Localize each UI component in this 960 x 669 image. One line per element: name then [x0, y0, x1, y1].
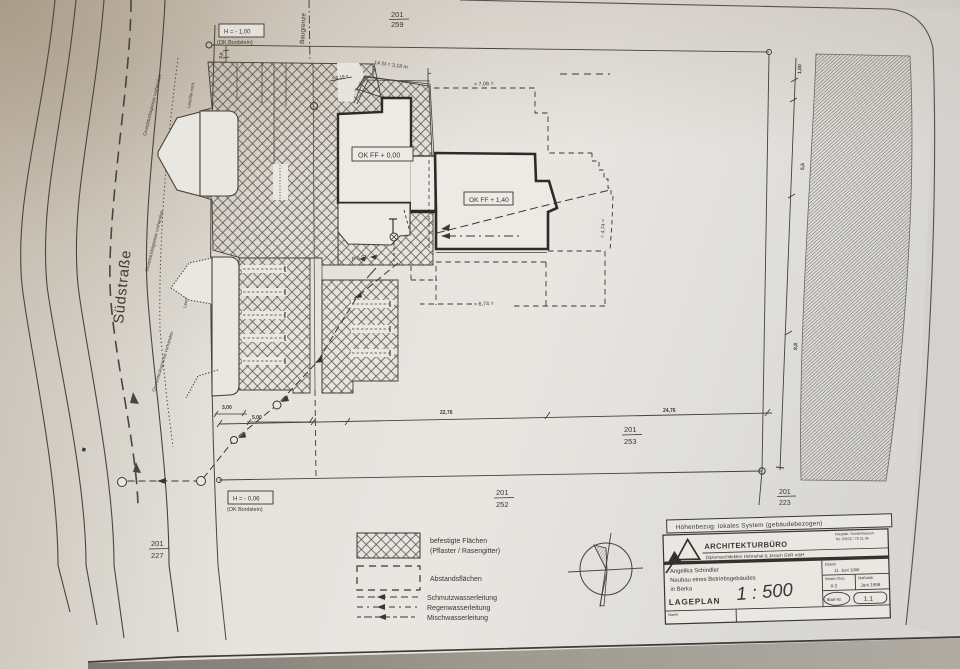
svg-text:OK FF + 1,40: OK FF + 1,40: [469, 197, 509, 204]
svg-text:24,76: 24,76: [663, 408, 676, 414]
svg-text:227: 227: [151, 551, 164, 560]
svg-text:259: 259: [391, 20, 404, 29]
svg-text:Schmutzwasserleitung: Schmutzwasserleitung: [427, 595, 497, 602]
svg-text:5,5: 5,5: [800, 163, 806, 170]
svg-text:1.1: 1.1: [864, 596, 874, 603]
svg-text:in Berka: in Berka: [670, 586, 692, 593]
svg-text:223: 223: [779, 500, 791, 507]
svg-text:201: 201: [391, 10, 404, 19]
svg-text:(OK Bordstein): (OK Bordstein): [227, 507, 263, 513]
svg-text:5,00: 5,00: [252, 415, 262, 421]
svg-text:= 6,74 =: = 6,74 =: [474, 301, 494, 308]
svg-text:201: 201: [624, 425, 637, 434]
svg-text:1,50: 1,50: [797, 64, 803, 74]
svg-text:(Pflaster / Rasengitter): (Pflaster / Rasengitter): [430, 548, 500, 555]
svg-text:= 7,06 =: = 7,06 =: [474, 81, 494, 88]
svg-text:201: 201: [496, 488, 509, 497]
svg-text:Regenwasserleitung: Regenwasserleitung: [427, 605, 491, 612]
svg-text:Abstandsflächen: Abstandsflächen: [430, 576, 482, 583]
svg-text:22,76: 22,76: [440, 410, 453, 416]
svg-text:Blatt-Nr.: Blatt-Nr.: [827, 597, 842, 602]
svg-text:11. Juni 1998: 11. Juni 1998: [834, 567, 860, 573]
svg-text:Juni 1998: Juni 1998: [860, 582, 880, 588]
svg-text:Datum: Datum: [825, 562, 836, 566]
svg-text:Maßstab: Maßstab: [858, 576, 873, 580]
svg-text:253: 253: [624, 437, 637, 446]
svg-text:LAGEPLAN: LAGEPLAN: [669, 597, 721, 607]
svg-text:3,00: 3,00: [222, 405, 232, 411]
svg-text:Bearb./Gez.: Bearb./Gez.: [825, 577, 845, 582]
svg-text:befestigte Flächen: befestigte Flächen: [430, 538, 487, 545]
svg-text:H = - 0,06: H = - 0,06: [233, 497, 260, 503]
svg-text:201: 201: [151, 539, 164, 548]
svg-text:= 4,74 =: = 4,74 =: [600, 219, 607, 238]
svg-text:OK FF + 0,00: OK FF + 0,00: [358, 153, 400, 160]
svg-text:252: 252: [496, 500, 509, 509]
svg-text:201: 201: [779, 489, 791, 496]
svg-text:Mischwasserleitung: Mischwasserleitung: [427, 615, 488, 622]
svg-text:8,8: 8,8: [793, 343, 799, 350]
svg-text:A 3: A 3: [830, 583, 837, 588]
svg-text:Name: Name: [668, 613, 678, 617]
svg-text:H = - 1,00: H = - 1,00: [224, 30, 251, 36]
